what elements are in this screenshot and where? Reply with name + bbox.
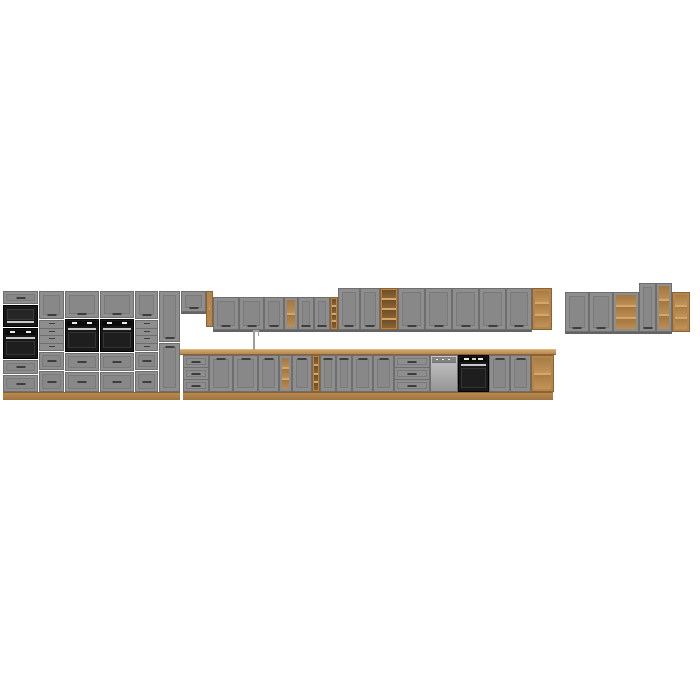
oven-housing-1-door xyxy=(65,291,99,318)
tall-column-top-drawer xyxy=(3,291,38,304)
tall-column-drawer-3 xyxy=(3,375,38,392)
base-cabinet-1 xyxy=(209,355,233,392)
wall-cabinet-5 xyxy=(314,297,330,330)
base-open-shelf xyxy=(279,355,292,392)
wall-open-shelf xyxy=(284,297,298,330)
wall-wood-end-shelf xyxy=(532,288,552,330)
wall-cabinet-4 xyxy=(298,297,314,330)
wall-tall-cabinet-5 xyxy=(452,288,479,330)
tall-column-drawer-2 xyxy=(3,360,38,374)
wall-tall-cabinet-1 xyxy=(338,288,360,330)
wall-cabinet-1 xyxy=(213,297,239,330)
wall-tall-cabinet-7 xyxy=(506,288,532,330)
tall-cabinet-1-drawer-2 xyxy=(39,371,64,392)
tall-cabinet-1-door xyxy=(39,291,64,319)
base-cabinet-4 xyxy=(320,355,336,392)
right-wall-cabinet-1 xyxy=(565,292,589,332)
base-drawer-unit-2 xyxy=(394,355,430,392)
wall-cabinet-high xyxy=(181,291,206,312)
built-in-oven-1 xyxy=(65,319,99,352)
tall-cabinet-2-small-drawers xyxy=(135,320,158,351)
base-cabinet-3 xyxy=(292,355,312,392)
kitchen-product-image xyxy=(0,0,700,700)
tall-cabinet-2-drawer-2 xyxy=(135,371,158,392)
oven-housing-1-drawer-2 xyxy=(65,372,99,392)
right-wall-tall-open-shelf xyxy=(656,283,672,332)
tall-cabinet-3-lower-door xyxy=(159,343,180,392)
built-in-oven-base xyxy=(458,355,489,392)
base-cabinet-9 xyxy=(510,355,531,392)
base-drawer-unit-1 xyxy=(183,355,209,392)
wall-tall-cabinet-4 xyxy=(425,288,452,330)
base-cabinet-7 xyxy=(373,355,394,392)
dishwasher xyxy=(430,355,458,392)
sink-base-cabinet xyxy=(233,355,258,392)
oven-housing-2-drawer-1 xyxy=(100,353,134,371)
base-wood-end-shelf xyxy=(531,355,554,392)
right-wall-cabinet-2 xyxy=(589,292,613,332)
oven-housing-1-drawer-1 xyxy=(65,353,99,371)
tall-section-plinth xyxy=(3,392,180,400)
base-cabinet-8 xyxy=(489,355,510,392)
base-cabinet-5 xyxy=(336,355,352,392)
right-wall-open-shelf xyxy=(613,292,639,332)
right-wall-wood-end-shelf xyxy=(672,292,690,332)
wall-tall-cabinet-3 xyxy=(398,288,425,330)
tall-cabinet-1-drawer-1 xyxy=(39,352,64,370)
oven-housing-2-drawer-2 xyxy=(100,372,134,392)
wall-cabinet-3 xyxy=(264,297,284,330)
tall-cabinet-2-drawer-1 xyxy=(135,352,158,370)
base-cabinet-2 xyxy=(258,355,279,392)
base-plinth xyxy=(183,392,553,400)
base-cabinet-6 xyxy=(352,355,373,392)
right-wall-tall-door xyxy=(639,283,656,332)
built-in-microwave xyxy=(3,305,38,327)
built-in-oven-2 xyxy=(100,319,134,352)
wall-tall-cabinet-2 xyxy=(360,288,380,330)
tall-cabinet-3-upper-door xyxy=(159,291,180,342)
built-in-oven-column xyxy=(3,328,38,359)
base-wine-rack xyxy=(312,355,320,392)
wall-wine-rack xyxy=(330,297,338,330)
wall-tall-cabinet-6 xyxy=(479,288,506,330)
tall-cabinet-1-small-drawers xyxy=(39,320,64,351)
wall-cabinet-2 xyxy=(239,297,264,330)
tall-cabinet-2-door xyxy=(135,291,158,319)
wall-open-side-shelf xyxy=(206,291,213,327)
sink-faucet xyxy=(251,330,260,349)
oven-housing-2-door xyxy=(100,291,134,318)
wall-tall-wine-rack xyxy=(380,288,398,330)
